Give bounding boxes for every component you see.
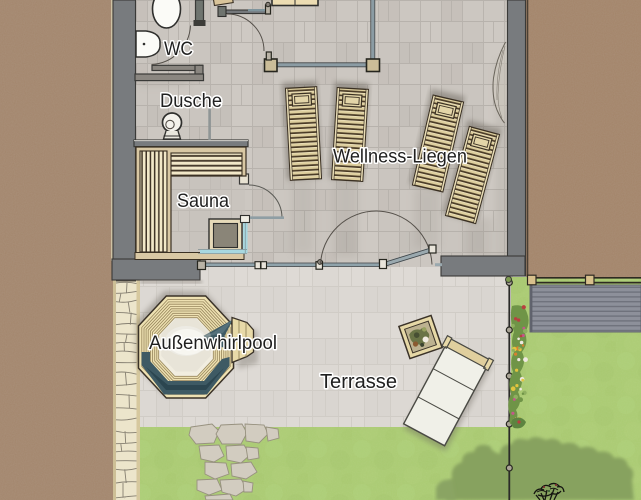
svg-text:Außenwhirlpool: Außenwhirlpool [149, 332, 277, 354]
svg-text:Sauna: Sauna [177, 190, 229, 212]
svg-text:Terrasse: Terrasse [320, 371, 397, 393]
svg-text:WC: WC [164, 39, 193, 60]
svg-text:Wellness-Liegen: Wellness-Liegen [333, 146, 467, 168]
svg-text:Dusche: Dusche [160, 90, 222, 112]
